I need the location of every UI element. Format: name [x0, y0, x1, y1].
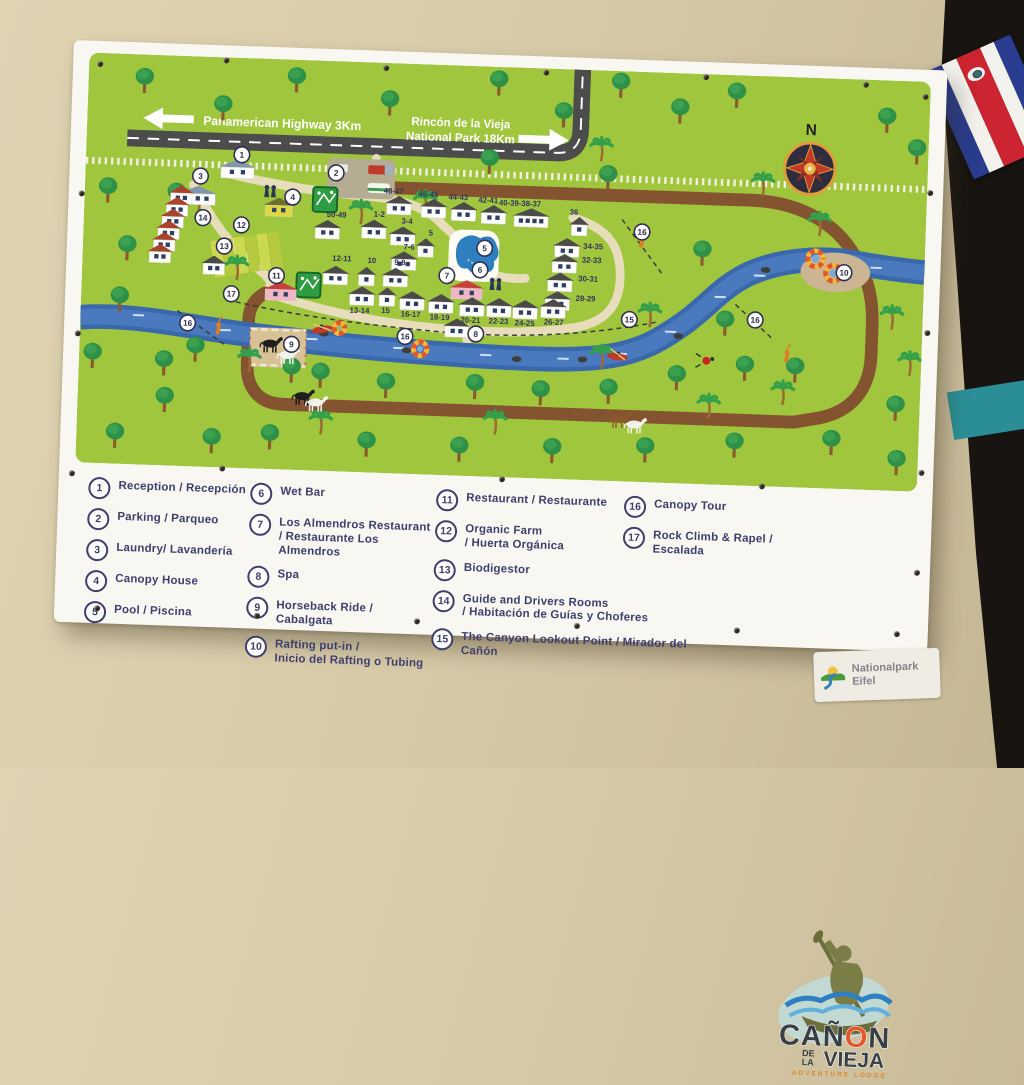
resort-map: Panamerican Highway 3Km Rincón de la Vie…	[75, 53, 931, 492]
marker-number: 10	[839, 267, 849, 277]
cabin-label-9-8: 9-8	[394, 258, 406, 267]
legend-item-3: 3Laundry/ Lavandería	[86, 539, 247, 567]
path	[708, 401, 710, 418]
rect	[281, 208, 285, 212]
cabin-label-44-43: 44-43	[448, 192, 469, 202]
path	[909, 359, 911, 376]
legend-item-9: 9Horseback Ride / Cabalgata	[246, 597, 439, 633]
legend-item-5: 5Pool / Piscina	[84, 601, 245, 629]
map-marker-15: 15	[621, 311, 637, 327]
path	[361, 207, 363, 224]
screw	[219, 465, 225, 471]
rect	[569, 249, 573, 253]
marker-number: 1	[239, 150, 244, 160]
rect	[457, 212, 461, 216]
map-marker-6: 6	[472, 262, 488, 278]
lodge-map-board: Panamerican Highway 3Km Rincón de la Vie…	[54, 40, 948, 652]
path	[819, 219, 821, 236]
marker-number: 12	[237, 220, 247, 230]
legend-item-4: 4Canopy House	[85, 570, 246, 598]
rect	[459, 290, 463, 294]
legend-label: Wet Bar	[280, 483, 325, 500]
legend-label: Parking / Parqueo	[117, 509, 219, 528]
legend-column-1: 1Reception / Recepción2Parking / Parqueo…	[83, 477, 248, 637]
legend-item-17: 17Rock Climb & Rapel / Escalada	[622, 526, 787, 561]
rect	[349, 294, 374, 306]
rect	[493, 308, 497, 312]
rect	[397, 278, 401, 282]
map-marker-11: 11	[268, 267, 284, 283]
rect	[241, 170, 245, 174]
cabin-label-42-41: 42-41	[478, 195, 499, 205]
marker-number: 4	[290, 192, 295, 202]
legend-label: Canopy House	[115, 571, 198, 590]
lodge-logo: CAÑON DE LA VIEJA ADVENTURE LODGE	[760, 925, 917, 1080]
legend-number: 11	[436, 489, 459, 512]
cabin-label-32-33: 32-33	[582, 255, 603, 265]
rect	[435, 304, 439, 308]
svg-text:N: N	[805, 122, 817, 140]
rect	[272, 208, 276, 212]
rect	[406, 262, 410, 266]
sticker-line2: Eifel	[852, 674, 919, 689]
legend-label: Laundry/ Lavandería	[116, 540, 233, 560]
legend-label: Rock Climb & Rapel / Escalada	[652, 528, 773, 562]
rect	[554, 283, 558, 287]
path	[891, 313, 893, 330]
rect	[527, 311, 531, 315]
rect	[204, 196, 208, 200]
legend-number: 8	[247, 566, 270, 589]
canopy-sign	[313, 187, 338, 213]
screw	[918, 470, 924, 476]
rect	[329, 230, 333, 234]
path	[320, 417, 322, 434]
logo-la: LA	[802, 1057, 815, 1067]
rect	[265, 289, 296, 301]
cabin-label-18-19: 18-19	[430, 312, 451, 322]
rect	[466, 307, 470, 311]
raft-ring-icon	[334, 323, 345, 334]
marker-number: 6	[478, 265, 483, 275]
raft-ring-icon	[807, 251, 823, 267]
map-marker-8: 8	[468, 326, 484, 342]
path	[782, 388, 784, 405]
legend-label: Rafting put-in / Inicio del Rafting o Tu…	[274, 636, 424, 671]
map-marker-2: 2	[328, 165, 344, 181]
legend-label: Los Almendros Restaurant / Restaurante L…	[278, 514, 441, 563]
rect	[161, 254, 165, 258]
marker-number: 5	[482, 243, 487, 253]
marker-number: 2	[334, 168, 339, 178]
legend-label: Pool / Piscina	[114, 602, 192, 620]
legend-label: Horseback Ride / Cabalgata	[276, 598, 373, 631]
logo-subtitle: VIEJA	[823, 1048, 884, 1073]
legend-item-16: 16Canopy Tour	[624, 495, 789, 523]
path	[601, 352, 603, 369]
cabin-label-15: 15	[381, 306, 391, 315]
rect	[284, 292, 288, 296]
legend-item-1: 1Reception / Recepción	[88, 477, 249, 505]
rect	[154, 254, 158, 258]
legend-label: Biodigestor	[464, 560, 531, 578]
legend-column-4: 16Canopy Tour17Rock Climb & Rapel / Esca…	[622, 495, 788, 570]
rect	[356, 297, 360, 301]
legend-number: 4	[85, 570, 108, 593]
flag-coat-of-arms	[965, 64, 987, 83]
legend-number: 15	[431, 628, 454, 651]
rect	[404, 237, 408, 241]
rect	[196, 196, 200, 200]
rect	[552, 261, 577, 273]
map-marker-1: 1	[234, 147, 250, 163]
rect	[230, 170, 234, 174]
legend-number: 1	[88, 477, 111, 500]
rect	[566, 264, 570, 268]
legend-label: Canopy Tour	[654, 497, 727, 515]
rect	[561, 248, 565, 252]
map-marker-17: 17	[223, 286, 239, 302]
rect	[458, 329, 462, 333]
rect	[389, 278, 393, 282]
marker-number: 16	[183, 318, 193, 328]
rect	[451, 288, 482, 300]
cabin-label-10: 10	[367, 256, 377, 265]
marker-number: 17	[227, 288, 237, 298]
rect	[149, 251, 171, 263]
rect	[495, 216, 499, 220]
rect	[539, 219, 543, 223]
cabin-label-7-6: 7-6	[403, 242, 415, 251]
legend-number: 14	[432, 589, 455, 612]
marker-number: 15	[625, 314, 635, 324]
legend-label: Reception / Recepción	[118, 478, 246, 498]
cabin-label-48-47: 48-47	[384, 186, 404, 196]
map-marker-10: 10	[836, 264, 852, 280]
legend-item-2: 2Parking / Parqueo	[87, 508, 248, 536]
rect	[208, 266, 212, 270]
map-marker-12: 12	[233, 217, 249, 233]
rect	[414, 302, 418, 306]
rect	[221, 167, 254, 179]
legend-column-2: 6Wet Bar7Los Almendros Restaurant / Rest…	[244, 482, 443, 680]
rect	[385, 298, 389, 302]
nationalpark-logo-icon	[820, 663, 847, 690]
rect	[401, 206, 405, 210]
marker-number: 8	[473, 329, 478, 339]
rect	[443, 305, 447, 309]
legend-label: Spa	[277, 567, 299, 584]
rect	[501, 309, 505, 313]
legend-item-7: 7Los Almendros Restaurant / Restaurante …	[248, 513, 441, 563]
rect	[465, 212, 469, 216]
cabin-label-28-29: 28-29	[575, 294, 596, 304]
rect	[178, 207, 182, 211]
marker-number: 16	[637, 227, 647, 237]
map-marker-14: 14	[195, 209, 211, 225]
map-marker-9: 9	[283, 336, 299, 352]
marker-number: 14	[198, 212, 208, 222]
rect	[166, 243, 170, 247]
path	[495, 418, 497, 435]
map-marker-16: 16	[180, 315, 196, 331]
rect	[273, 292, 277, 296]
cabin-label-46-45: 46-45	[418, 189, 439, 199]
screw	[924, 330, 930, 336]
cabin-label-24-25: 24-25	[515, 318, 536, 328]
rect	[450, 329, 454, 333]
path	[237, 263, 239, 280]
map-marker-16: 16	[397, 328, 413, 344]
cabin-label-16-17: 16-17	[401, 309, 421, 319]
rect	[364, 297, 368, 301]
legend-item-14: 14Guide and Drivers Rooms / Habitación d…	[432, 589, 691, 628]
marker-number: 13	[219, 241, 229, 251]
rect	[474, 308, 478, 312]
cabin-label-1-2: 1-2	[374, 210, 386, 219]
rect	[170, 231, 174, 235]
rect	[376, 230, 380, 234]
rect	[562, 283, 566, 287]
marker-number: 16	[750, 315, 760, 325]
path	[762, 180, 764, 197]
map-marker-16: 16	[747, 312, 763, 328]
rect	[323, 273, 348, 285]
rect	[548, 280, 573, 292]
rect	[519, 310, 523, 314]
marker-number: 7	[444, 270, 449, 280]
marker-number: 16	[400, 331, 410, 341]
rect	[321, 230, 325, 234]
rect	[470, 291, 474, 295]
rect	[526, 219, 530, 223]
marker-number: 9	[289, 339, 294, 349]
cabin-label-30-31: 30-31	[578, 274, 599, 284]
screw	[759, 483, 765, 489]
rect	[481, 213, 506, 225]
rect	[435, 209, 439, 213]
legend-label: Restaurant / Restaurante	[466, 490, 607, 511]
rect	[577, 227, 581, 231]
legend-label: The Canyon Lookout Point / Mirador del C…	[461, 629, 690, 667]
rect	[451, 210, 476, 222]
legend-item-6: 6Wet Bar	[250, 482, 443, 511]
cabin-label-36: 36	[570, 208, 580, 217]
legend-number: 6	[250, 482, 273, 505]
rect	[203, 263, 225, 275]
cabin-label-20-21: 20-21	[460, 315, 481, 325]
rect	[387, 203, 412, 215]
legend-number: 2	[87, 508, 110, 531]
rect	[265, 205, 292, 217]
rect	[487, 215, 491, 219]
cabin-label-50-49: 50-49	[327, 210, 348, 220]
map-marker-16: 16	[634, 224, 650, 240]
map-area: Panamerican Highway 3Km Rincón de la Vie…	[75, 53, 931, 492]
path	[649, 310, 651, 327]
rect	[174, 219, 178, 223]
cabin-label-22-23: 22-23	[488, 316, 509, 326]
marker-number: 3	[198, 171, 203, 181]
rect	[368, 230, 372, 234]
legend-item-15: 15The Canyon Lookout Point / Mirador del…	[431, 628, 690, 667]
rect	[555, 310, 559, 314]
cabin-label-26-27: 26-27	[544, 317, 564, 327]
legend-number: 13	[433, 558, 456, 581]
legend-item-10: 10Rafting put-in / Inicio del Rafting o …	[244, 635, 437, 671]
screw	[499, 476, 505, 482]
legend-number: 3	[86, 539, 109, 562]
rect	[423, 249, 427, 253]
screw	[927, 190, 933, 196]
cabin-label-34-35: 34-35	[583, 242, 604, 252]
rect	[364, 277, 368, 281]
legend-number: 17	[623, 526, 646, 549]
cabin-label-40-39-38-37: 40-39-38-37	[499, 198, 541, 209]
sticker-line1: Nationalpark	[852, 661, 919, 676]
rect	[329, 276, 333, 280]
rect	[396, 237, 400, 241]
cabin-label-12-11: 12-11	[332, 254, 352, 264]
path	[601, 145, 603, 162]
canopy-sign	[296, 272, 321, 298]
map-marker-5: 5	[477, 240, 493, 256]
rect	[183, 196, 187, 200]
raft-ring-icon	[413, 342, 427, 356]
legend-item-8: 8Spa	[247, 566, 440, 595]
legend-number: 5	[84, 601, 107, 624]
cabin-label-3-4: 3-4	[401, 217, 413, 226]
rect	[362, 227, 387, 239]
map-marker-4: 4	[285, 189, 301, 205]
legend-number: 7	[249, 513, 272, 536]
rect	[421, 207, 446, 219]
rect	[393, 206, 397, 210]
rect	[383, 275, 408, 287]
map-marker-7: 7	[439, 267, 455, 283]
rect	[445, 326, 469, 338]
marker-number: 11	[272, 270, 281, 280]
rect	[215, 266, 219, 270]
rect	[519, 218, 523, 222]
nationalpark-eifel-sticker: Nationalpark Eifel	[813, 648, 941, 702]
map-marker-13: 13	[216, 238, 232, 254]
logo-graphic: CAÑON DE LA VIEJA ADVENTURE LODGE	[760, 925, 917, 1080]
rect	[547, 309, 551, 313]
legend-label: Guide and Drivers Rooms / Habitación de …	[462, 591, 649, 627]
rect	[558, 264, 562, 268]
map-legend: 1Reception / Recepción2Parking / Parqueo…	[54, 470, 933, 652]
cabin-label-13-14: 13-14	[349, 306, 370, 316]
legend-number: 16	[624, 495, 647, 518]
rect	[532, 219, 536, 223]
path	[249, 356, 251, 373]
rect	[315, 228, 340, 240]
map-marker-3: 3	[192, 168, 208, 184]
legend-number: 12	[435, 520, 458, 543]
legend-label: Organic Farm / Huerta Orgánica	[464, 521, 564, 554]
rect	[406, 301, 410, 305]
rect	[337, 276, 341, 280]
rect	[427, 209, 431, 213]
photo-of-lodge-map-on-wall: { "map": { "highway_label": "Panamerican…	[0, 0, 1024, 768]
legend-number: 10	[245, 635, 268, 658]
